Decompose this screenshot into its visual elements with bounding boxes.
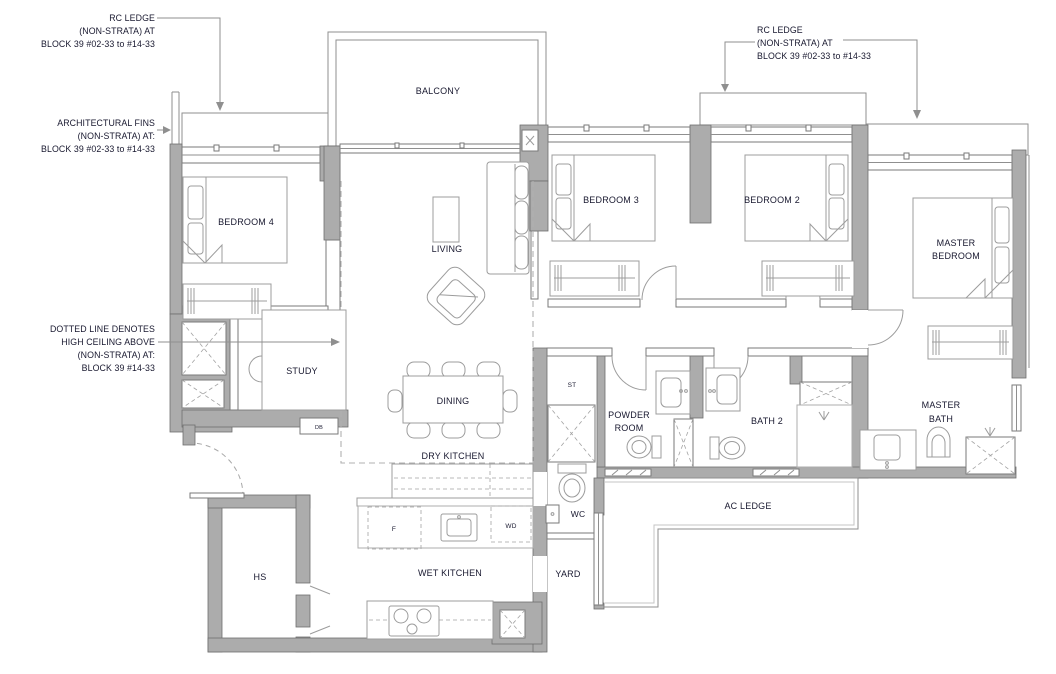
arch-fins-line3: BLOCK 39 #02-33 to #14-33 (41, 144, 155, 154)
bedroom4-label: BEDROOM 4 (218, 217, 274, 227)
master-bedroom-door (868, 310, 903, 345)
bedroom4-furniture (183, 177, 287, 319)
shaft-powder-bath2 (674, 419, 693, 467)
master-bedroom-label-2: BEDROOM (932, 251, 980, 261)
wall-hs-right-upper (296, 495, 310, 583)
master-basin (860, 430, 916, 470)
wc-basin (546, 505, 559, 523)
db-label: DB (315, 425, 323, 431)
floor-plan-page: BALCONY LIVING DINING DRY KITCHEN WET KI… (0, 0, 1056, 674)
wc-label: WC (571, 509, 586, 519)
wall-powder-bath2-divider (690, 356, 703, 418)
balcony-sliding-door (340, 143, 520, 153)
rc-ledge-left-line1: RC LEDGE (109, 13, 155, 23)
bedroom3-label: BEDROOM 3 (583, 195, 639, 205)
rc-ledge-right-line3: BLOCK 39 #02-33 to #14-33 (757, 51, 871, 61)
high-ceiling-line4: BLOCK 39 #14-33 (82, 363, 155, 373)
wardrobe-bedroom4 (183, 284, 271, 319)
high-ceiling-note: DOTTED LINE DENOTES HIGH CEILING ABOVE (… (50, 324, 155, 373)
bedroom3-window (548, 125, 690, 142)
master-bath-label-1: MASTER (922, 400, 961, 410)
wall-bedroom3-left-lower (531, 231, 538, 299)
rc-ledge-left-line2: (NON-STRATA) AT (79, 26, 155, 36)
wall-yard-right-upper (594, 478, 604, 515)
dining-label: DINING (437, 396, 470, 406)
store-label: ST (568, 382, 577, 389)
washer-dryer-label: WD (505, 523, 516, 530)
study-label: STUDY (286, 366, 318, 376)
bedroom3-door (642, 266, 676, 300)
master-bedroom-furniture (913, 198, 1013, 359)
wall-study-left (230, 314, 238, 410)
wardrobe-master (928, 326, 1013, 359)
wall-entry-jamb (183, 425, 195, 445)
bedroom3-furniture (550, 155, 655, 296)
bath2-toilet (710, 437, 745, 459)
wall-hs-right-mid (296, 595, 310, 627)
bedroom2-label: BEDROOM 2 (744, 195, 800, 205)
dry-kitchen-label: DRY KITCHEN (422, 451, 485, 461)
entrance-door (188, 443, 244, 498)
master-shower (966, 427, 1015, 474)
rc-ledge-left-outline (182, 113, 328, 147)
shaft-store (548, 405, 595, 462)
shower-head-icon (985, 427, 995, 436)
armchair (424, 264, 489, 329)
shower-head-icon (819, 411, 829, 420)
bath2-basin (706, 368, 740, 411)
wall-master-right (1012, 150, 1026, 378)
dining-chair (503, 390, 517, 412)
balcony-column-fixture (522, 130, 538, 151)
balcony-label: BALCONY (416, 86, 460, 96)
powder-toilet (627, 436, 661, 458)
rc-ledge-left-line3: BLOCK 39 #02-33 to #14-33 (41, 39, 155, 49)
wet-kitchen-label: WET KITCHEN (418, 568, 482, 578)
powder-room-label-2: ROOM (615, 423, 644, 433)
wall-hs-left (208, 495, 222, 652)
wc-toilet (558, 464, 586, 502)
rc-ledge-right-line1: RC LEDGE (757, 25, 803, 35)
wardrobe-bedroom3 (550, 261, 639, 296)
high-ceiling-line1: DOTTED LINE DENOTES (50, 324, 155, 334)
powder-basin (656, 371, 690, 414)
dining-chair (477, 422, 500, 438)
hs-door-leaves (310, 586, 330, 634)
rc-ledge-right-line2: (NON-STRATA) AT (757, 38, 833, 48)
yard-label: YARD (555, 569, 580, 579)
arch-fins-line1: ARCHITECTURAL FINS (57, 118, 155, 128)
ac-ledge-label: AC LEDGE (724, 501, 771, 511)
wall-bath2-right-stub (790, 356, 802, 384)
rc-ledge-left-note: RC LEDGE (NON-STRATA) AT BLOCK 39 #02-33… (41, 13, 156, 49)
wall-powder-left (597, 348, 605, 467)
high-ceiling-line2: HIGH CEILING ABOVE (61, 337, 155, 347)
wall-wc-yard-divider (547, 533, 597, 539)
shaft-left-1 (182, 322, 226, 375)
master-bedroom-window (868, 153, 1012, 170)
dry-kitchen-counter (392, 464, 533, 498)
rc-ledge-right-note: RC LEDGE (NON-STRATA) AT BLOCK 39 #02-33… (757, 25, 871, 61)
master-bedroom-label-1: MASTER (937, 238, 976, 248)
wardrobe-bedroom2 (762, 261, 854, 296)
ac-ledge-outline (604, 478, 858, 607)
bath2-label: BATH 2 (751, 416, 783, 426)
tv-console (433, 197, 459, 242)
high-ceiling-line3: (NON-STRATA) AT: (78, 350, 155, 360)
bath2-vent (753, 469, 799, 476)
rc-ledge-right-a-outline (700, 93, 866, 125)
wet-kitchen-bottom-counter (367, 601, 493, 639)
wall-bedroom4-right-lower (326, 240, 340, 310)
dining-chair (442, 422, 465, 438)
wall-bedroom3-bedroom2-column (690, 125, 711, 223)
study-chair (249, 356, 262, 382)
bedroom2-window (711, 125, 852, 142)
shaft-left-2 (182, 380, 224, 408)
rc-ledge-left-leader (157, 18, 224, 111)
dining-chair (388, 390, 402, 412)
wall-left-upper (170, 144, 182, 314)
master-door-gap (852, 310, 868, 348)
wc-door-gap (533, 472, 547, 506)
kitchen-sink (441, 514, 477, 541)
dining-chair (407, 422, 430, 438)
fridge-label: F (392, 526, 396, 533)
living-label: LIVING (432, 244, 463, 254)
architectural-fins-leader (157, 126, 171, 134)
gas-hob (389, 606, 439, 636)
shaft-kitchen-corner (500, 610, 525, 638)
powder-room-door (612, 356, 646, 390)
floor-plan-drawing: BALCONY LIVING DINING DRY KITCHEN WET KI… (0, 0, 1056, 674)
bed-master (913, 198, 1013, 298)
architectural-fins (172, 92, 179, 146)
master-bath-label-2: BATH (929, 414, 953, 424)
bath2-shower (797, 405, 852, 467)
vent-bath2 (800, 382, 852, 405)
master-bath-window (1012, 385, 1021, 431)
arch-fins-line2: (NON-STRATA) AT: (78, 131, 155, 141)
yard-door-gap (533, 556, 547, 592)
bedroom4-window (182, 145, 320, 163)
wall-bedroom4-right-column (324, 146, 340, 240)
master-toilet (927, 427, 950, 457)
study-desk (262, 310, 346, 410)
hs-label: HS (254, 572, 267, 582)
wall-bathrooms-bottom (597, 467, 1016, 478)
yard-window (594, 513, 603, 605)
powder-room-vent (605, 469, 651, 476)
sofa (487, 162, 529, 274)
powder-room-label-1: POWDER (608, 410, 650, 420)
rc-ledge-right-b-outline (866, 124, 1028, 155)
architectural-fins-note: ARCHITECTURAL FINS (NON-STRATA) AT: BLOC… (41, 118, 155, 154)
bedroom2-furniture (745, 155, 854, 296)
